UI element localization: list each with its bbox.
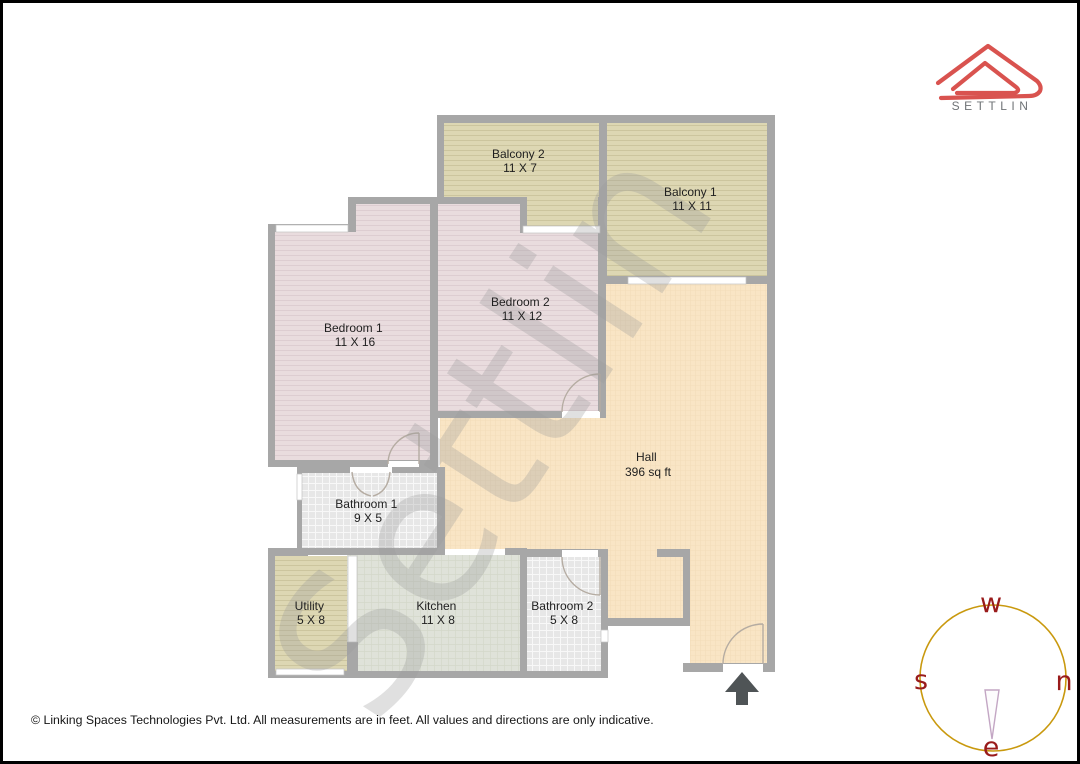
wall-hall-stub-vertical <box>683 549 690 626</box>
floorplan-page: Settlin Balcony 2 11 X 7 Balcony 1 11 X … <box>0 0 1080 764</box>
compass-letter-left: s <box>914 665 928 696</box>
wall-hall-pocket-bottom <box>605 618 690 626</box>
settlin-logo: SETTLIN <box>938 46 1041 113</box>
bathroom2-niche <box>601 630 608 642</box>
floorplan-canvas: Settlin Balcony 2 11 X 7 Balcony 1 11 X … <box>0 0 1080 764</box>
wall-bedroom1-left <box>268 224 275 467</box>
bathroom1-window <box>297 474 302 500</box>
logo-roof-inner-icon <box>953 63 1018 93</box>
wall-balcony2-left <box>437 115 444 204</box>
compass-letter-top: w <box>980 588 1002 619</box>
entrance-door-opening <box>723 664 763 672</box>
entrance-arrow-icon <box>725 672 759 705</box>
wall-right <box>767 115 775 672</box>
room-label-utility: Utility 5 X 8 <box>295 599 328 627</box>
copyright-text: © Linking Spaces Technologies Pvt. Ltd. … <box>31 713 654 727</box>
compass-letter-bottom: e <box>983 732 1000 763</box>
bedroom1-window <box>276 225 348 232</box>
compass: w s n e <box>914 588 1073 763</box>
wall-bedroom1-notch-top <box>348 197 437 204</box>
compass-letter-right: n <box>1055 666 1072 697</box>
logo-brand-text: SETTLIN <box>952 99 1033 113</box>
room-label-kitchen: Kitchen 11 X 8 <box>416 599 459 627</box>
bathroom2-door-opening <box>562 550 598 557</box>
room-label-balcony1: Balcony 1 11 X 11 <box>664 185 720 213</box>
wall-bathroom2-right <box>601 549 608 678</box>
